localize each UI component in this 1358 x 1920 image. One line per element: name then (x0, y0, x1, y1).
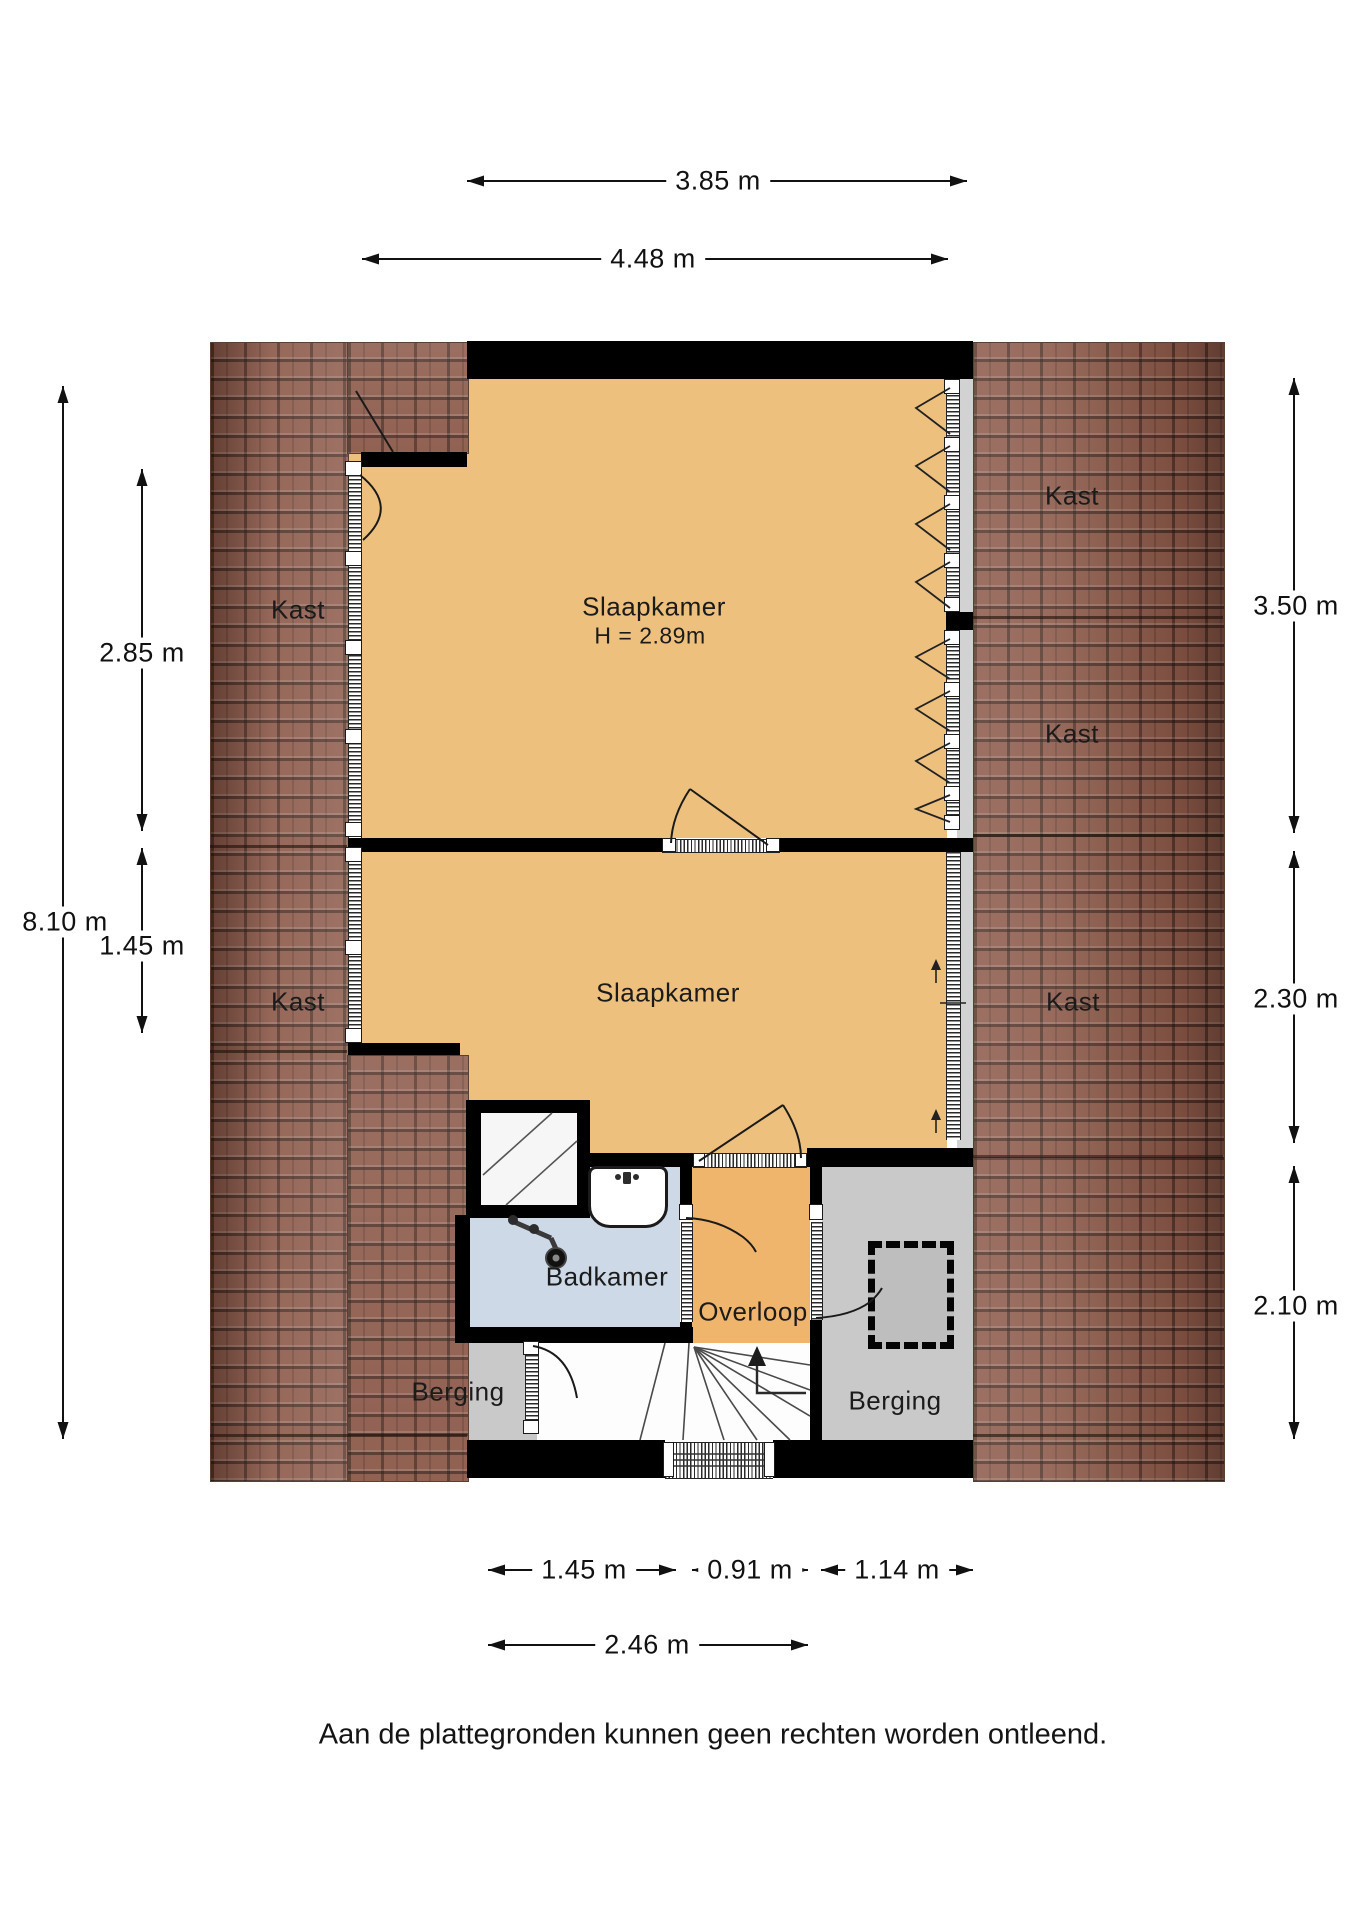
wall-divider-left (348, 838, 662, 852)
door-post (693, 1153, 705, 1167)
door-post (809, 1204, 823, 1220)
partition-post (944, 734, 960, 749)
room-label-bedroom1-height: H = 2.89m (594, 623, 705, 650)
attic-hatch-dashed-box (868, 1241, 954, 1349)
wall-shower-left (466, 1100, 481, 1218)
roof-tiles-left (210, 342, 349, 1482)
partition-post (944, 815, 960, 830)
room-label-bathroom: Badkamer (546, 1262, 669, 1293)
dim-top-inner: 3.85 m (666, 166, 770, 197)
partition-post (944, 553, 960, 568)
partition-post (944, 597, 960, 612)
partition-post (944, 630, 960, 645)
door-post (523, 1341, 539, 1355)
partition-post (944, 379, 960, 394)
partition-post (345, 729, 362, 744)
roof-seam (210, 1434, 467, 1437)
roof-tiles-bottom-left-block (347, 1055, 469, 1482)
wall-closet-stub-topleft (361, 452, 467, 467)
dim-bottom-246: 2.46 m (595, 1630, 699, 1661)
roof-tiles-top-left-block (347, 342, 469, 454)
wall-sink (590, 1153, 693, 1167)
window-post (663, 1442, 674, 1477)
dim-left-285: 2.85 m (90, 638, 194, 669)
dim-bottom-145: 1.45 m (532, 1555, 636, 1586)
partition-post (944, 437, 960, 452)
partition-post (944, 495, 960, 510)
bedroom2-floor-south (587, 1100, 947, 1155)
roof-seam (973, 1155, 1223, 1158)
wall-landing-right-a (810, 1160, 822, 1205)
partition-post (345, 847, 362, 862)
wall-bottom-right (773, 1440, 973, 1478)
door-post (679, 1204, 693, 1220)
roof-tiles-right (973, 342, 1225, 1482)
door-post (766, 838, 780, 852)
room-label-closet-mid-right: Kast (1045, 719, 1099, 750)
room-label-closet-bottom-left: Kast (271, 987, 325, 1018)
threshold-bedroom2-door (693, 1153, 807, 1168)
room-label-storage-left: Berging (411, 1377, 504, 1408)
wall-landing-right-b (810, 1320, 822, 1343)
dim-left-145: 1.45 m (90, 931, 194, 962)
wall-kast-separator-right (946, 612, 973, 630)
door-post (662, 838, 676, 852)
stairs-floor (640, 1343, 810, 1440)
dim-right-350: 3.50 m (1244, 591, 1348, 622)
window-bottom (665, 1442, 773, 1479)
roof-seam (210, 845, 347, 848)
wall-bathroom-bottom (455, 1327, 693, 1343)
dim-bottom-114: 1.14 m (845, 1555, 949, 1586)
door-post (795, 1153, 807, 1167)
roof-seam (973, 616, 1223, 619)
roof-seam (210, 1050, 347, 1053)
wall-landing-left-a (680, 1167, 692, 1205)
room-label-landing: Overloop (698, 1297, 808, 1328)
room-label-closet-top-right: Kast (1045, 481, 1099, 512)
room-label-bedroom2: Slaapkamer (596, 978, 740, 1009)
partition-post (345, 461, 362, 476)
wall-bathroom-left (455, 1215, 470, 1327)
door-post (523, 1420, 539, 1434)
room-label-storage-right: Berging (848, 1386, 941, 1417)
wall-bedroom2-left-stub (348, 1043, 460, 1055)
dim-bottom-091: 0.91 m (698, 1555, 802, 1586)
door-leaf-bathroom (681, 1222, 693, 1322)
partition-post (345, 822, 362, 837)
wall-divider-right (780, 838, 973, 852)
roof-seam (973, 834, 1223, 837)
partition-post (944, 682, 960, 697)
partition-bedroom2-right-sliding (946, 852, 961, 1140)
dim-top-outer: 4.48 m (601, 244, 705, 275)
door-leaf-storage-right (811, 1222, 823, 1320)
bedroom2-floor (348, 852, 947, 1043)
wall-stairs-right (810, 1343, 822, 1440)
sink (588, 1166, 668, 1228)
floorplan-page: 3.85 m 4.48 m 2.85 m 8.10 m 1.45 m 3.50 … (0, 0, 1358, 1920)
partition-post (944, 786, 960, 801)
room-label-bedroom1: Slaapkamer (582, 592, 726, 623)
wall-shower-bottom (466, 1205, 590, 1218)
partition-post (345, 1028, 362, 1043)
roof-seam (973, 1434, 1223, 1437)
partition-post (345, 640, 362, 655)
partition-post (345, 551, 362, 566)
dim-right-210: 2.10 m (1244, 1291, 1348, 1322)
wall-bedroom2-bottom-right (807, 1148, 973, 1167)
room-label-closet-top-left: Kast (271, 595, 325, 626)
wall-top (467, 341, 973, 379)
threshold-divider-door (662, 839, 780, 853)
wall-bottom-left (467, 1440, 665, 1478)
partition-post (345, 940, 362, 955)
disclaimer-text: Aan de plattegronden kunnen geen rechten… (319, 1719, 1107, 1752)
bedroom2-floor-lower (460, 1043, 947, 1105)
room-label-closet-bottom-right: Kast (1046, 987, 1100, 1018)
dim-right-230: 2.30 m (1244, 984, 1348, 1015)
wall-shower-top (466, 1100, 590, 1113)
shower-area (481, 1113, 577, 1205)
window-post (764, 1442, 775, 1477)
